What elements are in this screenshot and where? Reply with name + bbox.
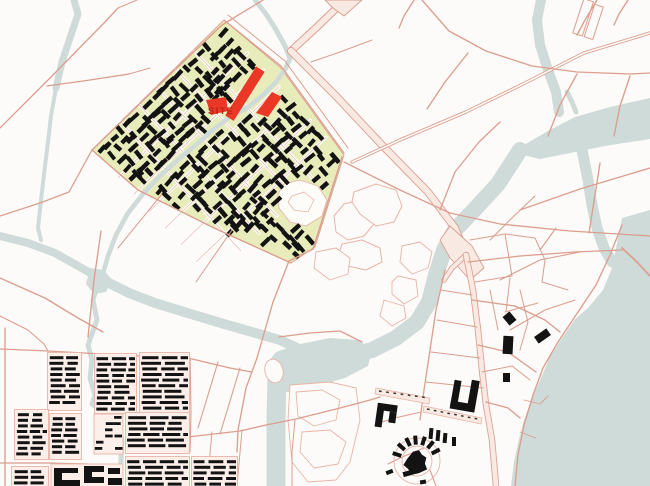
svg-text:SITE: SITE: [208, 106, 234, 117]
